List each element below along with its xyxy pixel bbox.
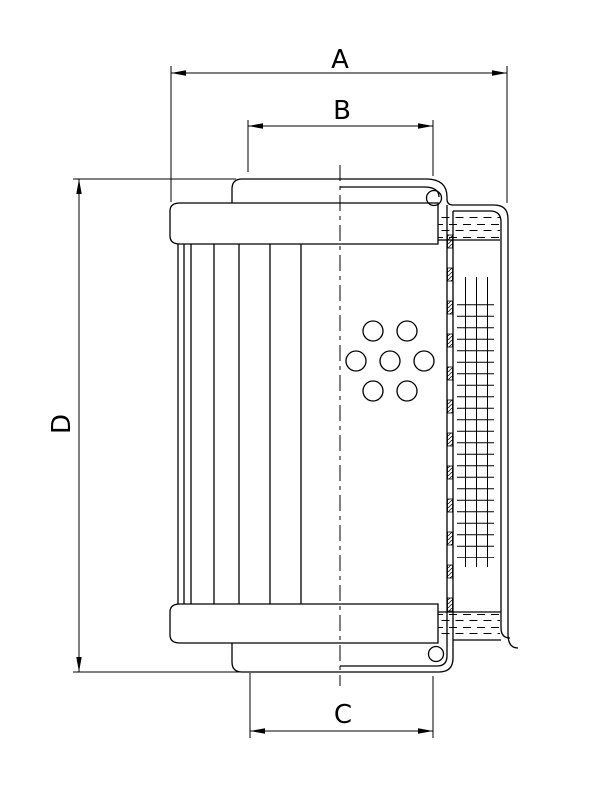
top-end-cap: [170, 203, 438, 244]
bottom-spigot: [429, 647, 444, 662]
dim-b-arrow-left-icon: [248, 123, 263, 128]
dim-b-label: B: [333, 96, 351, 126]
dimension-d: D: [47, 179, 250, 672]
perforation-hole: [346, 351, 366, 371]
pleated-filter-media: [178, 244, 301, 604]
bottom-seal: [438, 612, 501, 640]
support-tube-wall-inner-line: [340, 205, 447, 666]
bottom-end-cap: [170, 604, 438, 643]
hatch-block: [448, 400, 453, 413]
dimension-c: C: [250, 673, 433, 738]
support-tube-wall: [232, 205, 453, 672]
hatch-block: [448, 235, 453, 248]
dim-c-arrow-right-icon: [418, 728, 433, 733]
top-spigot-inner-wall: [340, 187, 439, 197]
dim-a-arrow-left-icon: [171, 70, 186, 75]
wire-mesh-screen: [457, 277, 494, 567]
filter-element-drawing: A B C D: [0, 0, 612, 792]
section-hatch-blocks: [448, 235, 453, 611]
dim-c-label: C: [334, 700, 352, 730]
dim-a-arrow-right-icon: [492, 70, 507, 75]
dim-a-label: A: [331, 45, 349, 75]
dimension-b: B: [248, 96, 433, 176]
drawing-sheet: A B C D: [0, 0, 612, 792]
dim-d-arrow-bottom-icon: [76, 657, 81, 672]
bottom-seal-fill: [438, 613, 500, 638]
hatch-block: [448, 334, 453, 347]
bottom-o-ring: [429, 647, 444, 662]
dim-d-label: D: [47, 414, 77, 434]
hatch-block: [448, 433, 453, 446]
dim-c-arrow-left-icon: [250, 728, 265, 733]
hatch-block: [448, 367, 453, 380]
hatch-block: [448, 301, 453, 314]
perforation-holes: [346, 321, 434, 401]
perforation-hole: [397, 381, 417, 401]
perforation-hole: [397, 321, 417, 341]
perforation-hole: [363, 321, 383, 341]
hatch-block: [448, 598, 453, 611]
perforation-hole: [380, 351, 400, 371]
dim-b-arrow-right-icon: [418, 123, 433, 128]
dim-d-arrow-top-icon: [76, 179, 81, 194]
hatch-block: [448, 268, 453, 281]
perforation-hole: [414, 351, 434, 371]
perforation-hole: [363, 381, 383, 401]
mesh-horizontal-wires: [457, 294, 494, 558]
hatch-block: [448, 499, 453, 512]
hatch-block: [448, 565, 453, 578]
support-tube-wall-outer-line-and-bottom-spigot: [232, 211, 453, 672]
hatch-block: [448, 532, 453, 545]
hatch-block: [448, 466, 453, 479]
bottom-end-cap-outline: [170, 604, 438, 643]
top-end-cap-outline: [170, 203, 438, 244]
